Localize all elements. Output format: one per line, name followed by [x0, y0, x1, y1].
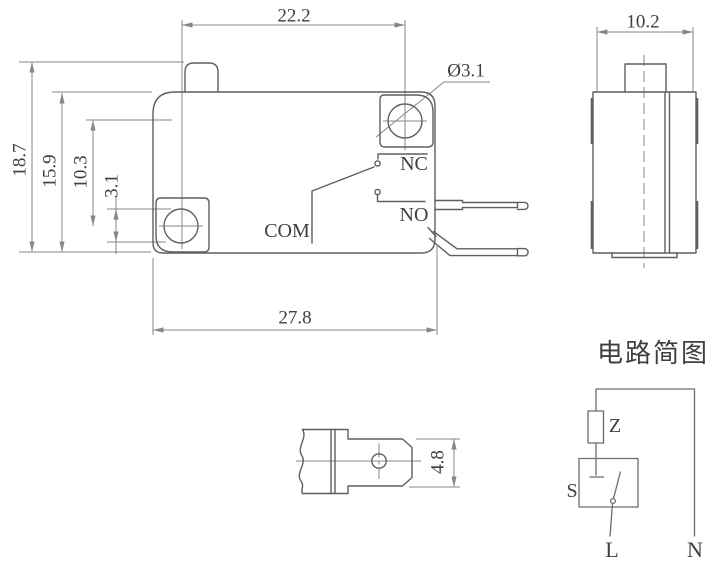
switch-box-symbol: [579, 459, 638, 508]
label-no: NO: [400, 205, 429, 225]
circuit-title: 电路简图: [597, 341, 709, 367]
dim-hole-height: 10.3: [72, 155, 91, 188]
dim-overall-height: 18.7: [11, 143, 30, 176]
label-live-l: L: [605, 539, 618, 561]
plunger-bump: [185, 63, 218, 92]
drawing-linework: [0, 0, 720, 567]
dim-hole-span: 3.1: [103, 174, 122, 198]
impedance-symbol: [588, 411, 604, 443]
dim-body-height: 15.9: [41, 154, 60, 187]
circuit-diagram-drawing: [579, 389, 695, 537]
label-com: COM: [264, 221, 310, 241]
side-view-drawing: [592, 27, 697, 268]
label-neutral-n: N: [687, 539, 703, 561]
dim-hole-diameter: Ø3.1: [447, 62, 484, 81]
circuit-wires: [590, 389, 695, 537]
dim-side-width: 10.2: [626, 13, 659, 32]
dim-hole-spacing: 22.2: [277, 7, 310, 26]
switch-pivot: [611, 499, 616, 504]
technical-drawing-canvas: 22.2 18.7 15.9 10.3 3.1 Ø3.1 27.8 NC NO …: [0, 0, 720, 567]
dim-body-width: 27.8: [278, 309, 311, 328]
label-switch-s: S: [566, 481, 577, 501]
side-plunger: [625, 64, 666, 92]
label-nc: NC: [400, 154, 428, 174]
dim-terminal-height: 4.8: [429, 450, 448, 474]
label-impedance-z: Z: [609, 416, 621, 436]
switch-terminals: [428, 201, 528, 256]
side-view-dimension-lines: [597, 27, 693, 268]
